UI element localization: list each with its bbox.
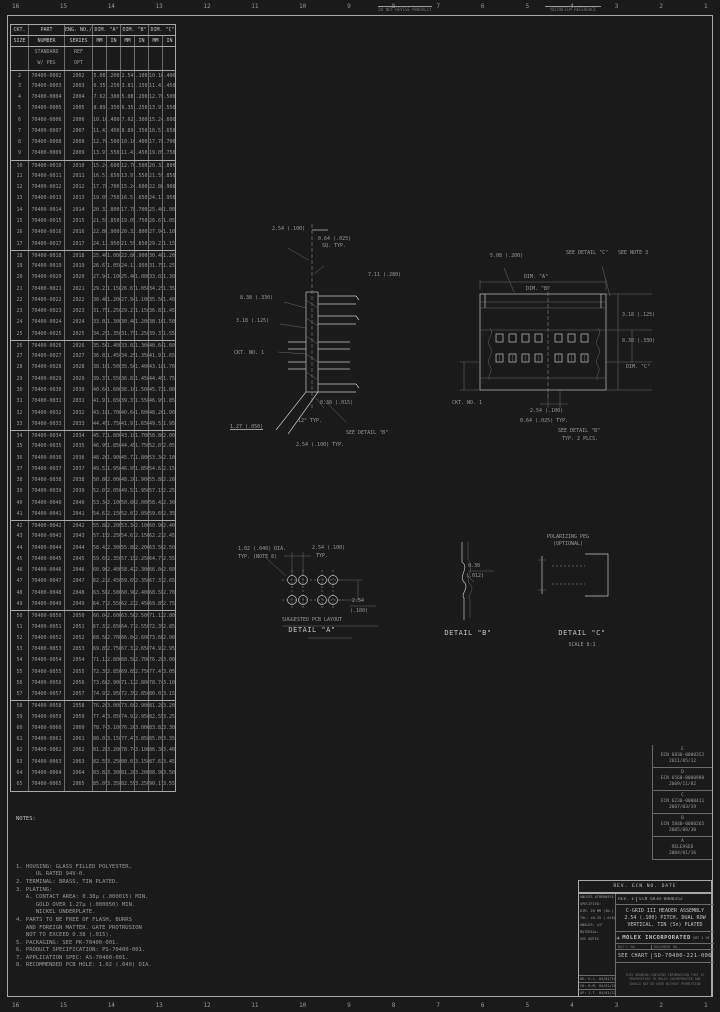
title-line-2: 2.54 (.100) PITCH, DUAL ROW	[616, 915, 714, 922]
cell-eng: 2024	[65, 317, 93, 328]
cell-ckt: 5	[11, 103, 29, 114]
cell-eng: 2022	[65, 295, 93, 306]
spec-line: SPECIFIED:	[579, 901, 615, 908]
cell-a-mm: 78.74	[93, 723, 107, 734]
cell-part: 70400-0058	[29, 701, 65, 711]
cell-a-in: 3.100	[107, 723, 121, 734]
cell-b-mm: 44.45	[121, 441, 135, 452]
cell-c-mm	[149, 47, 163, 58]
cell-a-mm: 15.24	[93, 161, 107, 171]
cell-b-in: 2.550	[135, 622, 149, 633]
cell-a-in: 1.900	[107, 453, 121, 464]
cell-part: 70400-0012	[29, 182, 65, 193]
cell-eng: 2047	[65, 576, 93, 587]
cell-b-mm: 64.77	[121, 622, 135, 633]
cell-a-mm: 48.26	[93, 453, 107, 464]
cell-a-in: 1.300	[107, 317, 121, 328]
cell-part: 70400-0008	[29, 137, 65, 148]
cell-eng: 2061	[65, 734, 93, 745]
cell-c-in: 3.250	[163, 712, 176, 723]
cell-a-mm: 53.34	[93, 498, 107, 509]
cell-a-in: 1.450	[107, 351, 121, 362]
cell-b-mm	[121, 47, 135, 58]
cell-part: 70400-0004	[29, 92, 65, 103]
table-row: 31 70400-0031 2031 41.91 1.650 39.37 1.5…	[11, 396, 175, 407]
cell-c-in: 2.500	[163, 543, 176, 554]
cell-b-in: .250	[135, 103, 149, 114]
cell-a-in: .400	[107, 115, 121, 126]
cell-a-in: 2.900	[107, 678, 121, 689]
cell-a-in: 1.100	[107, 272, 121, 283]
cell-part: 70400-0059	[29, 712, 65, 723]
cell-c-in: 3.450	[163, 757, 176, 768]
cell-part: 70400-0049	[29, 599, 65, 610]
cell-a-mm: 11.43	[93, 126, 107, 137]
table-row: 62 70400-0062 2062 81.28 3.200 78.74 3.1…	[11, 745, 175, 756]
cell-c-in: 1.900	[163, 408, 176, 419]
cell-c-in: 2.250	[163, 486, 176, 497]
cell-ckt: 24	[11, 317, 29, 328]
cell-ckt: 48	[11, 588, 29, 599]
cell-c-mm: 13.97	[149, 103, 163, 114]
cell-c-in: 2.600	[163, 565, 176, 576]
spec-line: DIM. IN MM (IN.)	[579, 908, 615, 915]
zone-label: 15	[60, 2, 67, 12]
cell-a-mm	[93, 58, 107, 69]
cell-c-in: 2.450	[163, 531, 176, 542]
cell-part: 70400-0027	[29, 351, 65, 362]
cell-eng: 2015	[65, 216, 93, 227]
cell-eng: 2032	[65, 408, 93, 419]
cell-ckt: 13	[11, 193, 29, 204]
cell-part: 70400-0048	[29, 588, 65, 599]
spec-line: UNLESS OTHERWISE	[579, 894, 615, 901]
cell-a-mm: 26.67	[93, 261, 107, 272]
cell-eng: 2054	[65, 655, 93, 666]
cell-eng: 2016	[65, 227, 93, 238]
cell-a-mm: 6.35	[93, 81, 107, 92]
cell-a-mm: 85.09	[93, 779, 107, 790]
cell-c-in: 2.000	[163, 431, 176, 441]
cell-part: 70400-0055	[29, 667, 65, 678]
detail-b-dim-mm: 0.30	[468, 563, 480, 569]
table-row: 63 70400-0063 2063 82.55 3.250 80.01 3.1…	[11, 757, 175, 768]
cell-a-mm: 40.64	[93, 385, 107, 396]
cell-part: 70400-0006	[29, 115, 65, 126]
dim-label: 8.38 (.330)	[240, 295, 273, 301]
cell-ckt: 7	[11, 126, 29, 137]
cell-c-mm: 86.36	[149, 745, 163, 756]
cell-a-in: 3.150	[107, 734, 121, 745]
zone-label: 14	[108, 2, 115, 12]
cell-c-mm: 17.78	[149, 137, 163, 148]
cell-ckt: 41	[11, 509, 29, 520]
cell-c-in: 2.100	[163, 453, 176, 464]
cell-a-mm: 41.91	[93, 396, 107, 407]
cell-b-mm: 7.62	[121, 115, 135, 126]
polarizing-peg-label: POLARIZING PEG	[538, 534, 598, 540]
cell-c-mm: 85.09	[149, 734, 163, 745]
cell-a-mm: 71.12	[93, 655, 107, 666]
cell-ckt: 35	[11, 441, 29, 452]
cell-b-mm: 34.29	[121, 351, 135, 362]
zone-label: 12	[203, 2, 210, 12]
cell-a-mm: 58.42	[93, 543, 107, 554]
cell-eng: 2020	[65, 272, 93, 283]
col-part-sub: NUMBER	[29, 36, 65, 46]
cell-b-in: 3.100	[135, 745, 149, 756]
cell-b-mm: 24.13	[121, 261, 135, 272]
cell-c-in: 1.050	[163, 216, 176, 227]
dim-label: 0.38 (.015)	[320, 400, 353, 406]
cell-eng: 2045	[65, 554, 93, 565]
cell-c-in: 2.800	[163, 611, 176, 621]
cell-eng: 2025	[65, 329, 93, 340]
cell-c-mm: 54.61	[149, 464, 163, 475]
cell-b-in: .450	[135, 148, 149, 159]
title-block: UNLESS OTHERWISESPECIFIED:DIM. IN MM (IN…	[578, 893, 712, 997]
cell-c-in: 1.950	[163, 419, 176, 430]
cell-ckt: 14	[11, 205, 29, 216]
cell-a-in: 3.350	[107, 779, 121, 790]
cell-part: 70400-0002	[29, 71, 65, 81]
cell-ckt: 63	[11, 757, 29, 768]
title-block-right-column: REV. E ECN 6830-0000352 C-GRID III HEADE…	[616, 894, 714, 996]
cell-a-mm: 43.18	[93, 408, 107, 419]
cell-a-in: .750	[107, 193, 121, 204]
cell-c-mm: 77.47	[149, 667, 163, 678]
cell-b-mm: 33.02	[121, 341, 135, 351]
cell-ckt	[11, 58, 29, 69]
cell-b-in: 1.300	[135, 341, 149, 351]
table-row: 24 70400-0024 2024 33.02 1.300 30.48 1.2…	[11, 317, 175, 328]
cell-c-mm: 58.42	[149, 498, 163, 509]
cell-ckt: 20	[11, 272, 29, 283]
cell-b-in: .950	[135, 261, 149, 272]
cell-a-mm: 69.85	[93, 644, 107, 655]
cell-b-mm: 15.24	[121, 182, 135, 193]
dim-label: 7.11 (.280)	[368, 272, 401, 278]
cell-ckt: 61	[11, 734, 29, 745]
cell-eng: 2028	[65, 362, 93, 373]
cell-c-in: .550	[163, 103, 176, 114]
hole-dia-label2: TYP. (NOTE 8)	[238, 554, 277, 560]
cell-a-mm: 34.29	[93, 329, 107, 340]
dim-b-label: DIM. "B"	[526, 286, 550, 292]
drawing-title: C-GRID III HEADER ASSEMBLY 2.54 (.100) P…	[616, 905, 714, 932]
detail-b-title: DETAIL "B"	[438, 629, 498, 637]
cell-b-in: 2.950	[135, 712, 149, 723]
cell-ckt: 28	[11, 362, 29, 373]
cell-a-mm: 21.59	[93, 216, 107, 227]
cell-c-mm: 87.63	[149, 757, 163, 768]
cell-eng: 2051	[65, 622, 93, 633]
cell-eng: 2059	[65, 712, 93, 723]
cell-a-in: 1.400	[107, 341, 121, 351]
cell-b-mm: 81.28	[121, 768, 135, 779]
table-row: 40 70400-0040 2040 53.34 2.100 50.80 2.0…	[11, 498, 175, 509]
cell-a-mm: 22.86	[93, 227, 107, 238]
cell-c-mm: 33.02	[149, 272, 163, 283]
cell-a-mm: 66.04	[93, 611, 107, 621]
cell-eng: 2037	[65, 464, 93, 475]
cell-a-in: .450	[107, 126, 121, 137]
cell-a-in: 1.950	[107, 464, 121, 475]
table-row: 47 70400-0047 2047 62.23 2.450 59.69 2.3…	[11, 576, 175, 587]
cell-c-in: 1.850	[163, 396, 176, 407]
table-row: 32 70400-0032 2032 43.18 1.700 40.64 1.6…	[11, 408, 175, 419]
cell-ckt	[11, 47, 29, 58]
revision-history: E ECN 6830-0000352 2011/05/12D ECN 6560-…	[652, 745, 712, 860]
engineering-drawing-sheet: { "colors":{"bg":"#1a1a1a","ink":"#c4c4c…	[0, 0, 720, 1012]
col-c-in: IN	[163, 36, 176, 46]
dim-label: CKT. NO. 1	[234, 350, 264, 356]
notes-title: NOTES:	[16, 816, 236, 824]
cell-part: 70400-0043	[29, 531, 65, 542]
cell-c-in: 2.900	[163, 633, 176, 644]
cell-c-in: 2.350	[163, 509, 176, 520]
cell-b-mm: 41.91	[121, 419, 135, 430]
table-row: 7 70400-0007 2007 11.43 .450 8.89 .350 1…	[11, 126, 175, 137]
note-line: 3. PLATING:	[16, 887, 236, 895]
cell-a-mm: 59.69	[93, 554, 107, 565]
cell-a-mm: 19.05	[93, 193, 107, 204]
rev-ecn-row: REV. E ECN 6830-0000352	[616, 894, 714, 905]
note-line: 1. HOUSING: GLASS FILLED POLYESTER,	[16, 864, 236, 872]
cell-a-in: 1.600	[107, 385, 121, 396]
cell-ckt: 22	[11, 295, 29, 306]
material-number: SEE CHART	[616, 953, 652, 959]
table-row: 34 70400-0034 2034 45.72 1.800 43.18 1.7…	[11, 430, 175, 441]
table-row: 39 70400-0039 2039 52.07 2.050 49.53 1.9…	[11, 486, 175, 497]
cell-eng: 2064	[65, 768, 93, 779]
cell-a-in: .950	[107, 239, 121, 250]
cell-a-in: 2.600	[107, 611, 121, 621]
cell-a-in: 2.250	[107, 531, 121, 542]
cell-b-mm: 26.67	[121, 284, 135, 295]
cell-b-mm: 55.88	[121, 543, 135, 554]
cell-a-in: 1.200	[107, 295, 121, 306]
table-row: 10 70400-0010 2010 15.24 .600 12.70 .500…	[11, 160, 175, 171]
cell-c-in: 2.850	[163, 622, 176, 633]
document-number: SD-70400-221-006	[652, 953, 714, 959]
cell-b-in: 2.450	[135, 599, 149, 610]
cell-b-mm: 71.12	[121, 678, 135, 689]
cell-part: 70400-0041	[29, 509, 65, 520]
cell-c-in: 2.650	[163, 576, 176, 587]
zone-label: 10	[299, 1001, 306, 1011]
note-line: 4. PARTS TO BE FREE OF FLASH, BURRS	[16, 917, 236, 925]
dim-label: TYP. 2 PLCS.	[562, 436, 598, 442]
signoff-row: CH: R.M. 04/01/20	[579, 982, 615, 989]
cell-a-in: 1.500	[107, 362, 121, 373]
microtext-left: DO NOT REVISE MANUALLY	[378, 6, 432, 12]
cell-b-in	[135, 58, 149, 69]
cell-part: 70400-0009	[29, 148, 65, 159]
cell-a-in: 2.050	[107, 486, 121, 497]
table-row: 51 70400-0051 2051 67.31 2.650 64.77 2.5…	[11, 622, 175, 633]
table-row: 15 70400-0015 2015 21.59 .850 19.05 .750…	[11, 216, 175, 227]
table-row: 50 70400-0050 2050 66.04 2.600 63.50 2.5…	[11, 610, 175, 621]
cell-ckt: 49	[11, 599, 29, 610]
cell-part: 70400-0019	[29, 261, 65, 272]
table-row: 53 70400-0053 2053 69.85 2.750 67.31 2.6…	[11, 644, 175, 655]
see-detail-b-label: SEE DETAIL "B"	[558, 428, 600, 434]
optional-label: (OPTIONAL)	[538, 541, 598, 547]
cell-b-in: .150	[135, 81, 149, 92]
table-row: 6 70400-0006 2006 10.16 .400 7.62 .300 1…	[11, 115, 175, 126]
cell-b-in: 2.200	[135, 543, 149, 554]
cell-b-mm	[121, 58, 135, 69]
cell-b-in: 2.250	[135, 554, 149, 565]
cell-ckt: 29	[11, 374, 29, 385]
cell-eng: OPT	[65, 58, 93, 69]
cell-b-in: 1.350	[135, 351, 149, 362]
cell-a-mm: 16.51	[93, 171, 107, 182]
table-row: 37 70400-0037 2037 49.53 1.950 46.99 1.8…	[11, 464, 175, 475]
cell-a-mm: 12.70	[93, 137, 107, 148]
cell-c-in: 1.500	[163, 317, 176, 328]
cell-ckt: 60	[11, 723, 29, 734]
table-header-row-1: CKT. PART ENG. NO./ DIM. "A" DIM. "B" DI…	[11, 25, 175, 36]
cell-c-in: 1.550	[163, 329, 176, 340]
rev-value: REV. E	[616, 897, 637, 902]
cell-ckt: 40	[11, 498, 29, 509]
col-dim-c: DIM. "C"	[149, 25, 176, 35]
cell-c-mm: 11.43	[149, 81, 163, 92]
cell-a-mm: 49.53	[93, 464, 107, 475]
cell-b-in: 3.000	[135, 723, 149, 734]
zone-label: 9	[347, 2, 351, 12]
cell-c-in: 1.200	[163, 251, 176, 261]
cell-c-mm: 76.20	[149, 655, 163, 666]
cell-a-in	[107, 58, 121, 69]
cell-part: 70400-0018	[29, 251, 65, 261]
cell-eng: 2039	[65, 486, 93, 497]
cell-c-in: 3.300	[163, 723, 176, 734]
zone-label: 6	[481, 1001, 485, 1011]
cell-a-mm: 5.08	[93, 71, 107, 81]
cell-eng: 2050	[65, 611, 93, 621]
cell-part: 70400-0039	[29, 486, 65, 497]
cell-part: 70400-0052	[29, 633, 65, 644]
cell-a-mm: 52.07	[93, 486, 107, 497]
molex-logo-icon: ✳	[616, 934, 620, 942]
table-row: 65 70400-0065 2065 85.09 3.350 82.55 3.2…	[11, 779, 175, 790]
cell-b-in: .300	[135, 115, 149, 126]
cell-b-mm: 11.43	[121, 148, 135, 159]
cell-c-mm: 50.80	[149, 431, 163, 441]
table-row: 11 70400-0011 2011 16.51 .650 13.97 .550…	[11, 171, 175, 182]
cell-part: 70400-0064	[29, 768, 65, 779]
cell-b-in: 1.400	[135, 362, 149, 373]
document-no-label: DOCUMENT NO.	[652, 945, 681, 949]
detail-c-title: DETAIL "C"	[553, 629, 611, 637]
cell-b-in: 2.000	[135, 498, 149, 509]
cell-a-in: 3.000	[107, 701, 121, 711]
cell-c-mm: 64.77	[149, 554, 163, 565]
cell-part: 70400-0005	[29, 103, 65, 114]
dim-label: 12° TYP.	[298, 418, 322, 424]
cell-b-in: 2.150	[135, 531, 149, 542]
cell-a-mm: 83.82	[93, 768, 107, 779]
note-line: AND FOREIGN MATTER. GATE PROTRUSION	[16, 925, 236, 933]
table-row: 36 70400-0036 2036 48.26 1.900 45.72 1.8…	[11, 453, 175, 464]
cell-c-mm: 29.21	[149, 239, 163, 250]
cell-part: STANDARD	[29, 47, 65, 58]
col-b-mm: MM	[121, 36, 135, 46]
cell-b-mm: 73.66	[121, 701, 135, 711]
table-row: 60 70400-0060 2060 78.74 3.100 76.20 3.0…	[11, 723, 175, 734]
cell-eng: 2017	[65, 239, 93, 250]
cell-eng: 2040	[65, 498, 93, 509]
cell-c-mm: 63.50	[149, 543, 163, 554]
cell-c-in: 2.400	[163, 521, 176, 531]
cell-a-mm: 57.15	[93, 531, 107, 542]
table-row: W/ PEG OPT	[11, 58, 175, 69]
zone-label: 13	[156, 1001, 163, 1011]
cell-a-in: 3.050	[107, 712, 121, 723]
cell-b-in: 2.700	[135, 655, 149, 666]
cell-c-in: 3.350	[163, 734, 176, 745]
cell-c-in: .700	[163, 137, 176, 148]
cell-b-mm: 60.96	[121, 588, 135, 599]
cell-c-mm: 39.37	[149, 329, 163, 340]
cell-a-mm: 30.48	[93, 295, 107, 306]
cell-c-mm: 45.72	[149, 385, 163, 396]
cell-c-in: .400	[163, 71, 176, 81]
cell-c-mm: 62.23	[149, 531, 163, 542]
cell-a-in: .650	[107, 171, 121, 182]
cell-c-mm: 31.75	[149, 261, 163, 272]
cell-part: 70400-0051	[29, 622, 65, 633]
cell-b-mm: 82.55	[121, 779, 135, 790]
cell-b-in: 1.700	[135, 431, 149, 441]
cell-part: 70400-0040	[29, 498, 65, 509]
cell-ckt: 10	[11, 161, 29, 171]
zone-label: 4	[570, 1001, 574, 1011]
col-c-mm: MM	[149, 36, 163, 46]
cell-ckt: 33	[11, 419, 29, 430]
zone-label: 1	[704, 1001, 708, 1011]
cell-eng: 2038	[65, 475, 93, 486]
cell-b-in: 1.150	[135, 306, 149, 317]
cell-b-in: 1.050	[135, 284, 149, 295]
dim-label: 5.08 (.200)	[490, 253, 523, 259]
cell-ckt: 16	[11, 227, 29, 238]
table-row: 49 70400-0049 2049 64.77 2.550 62.23 2.4…	[11, 599, 175, 610]
cell-b-in: .200	[135, 92, 149, 103]
detail-c-view	[530, 550, 630, 605]
table-row: 59 70400-0059 2059 77.47 3.050 74.93 2.9…	[11, 712, 175, 723]
cell-a-in: 3.250	[107, 757, 121, 768]
table-row: 38 70400-0038 2038 50.80 2.000 48.26 1.9…	[11, 475, 175, 486]
cell-part: 70400-0029	[29, 374, 65, 385]
table-row: 23 70400-0023 2023 31.75 1.250 29.21 1.1…	[11, 306, 175, 317]
cell-ckt: 36	[11, 453, 29, 464]
cell-a-in: .200	[107, 71, 121, 81]
cell-part: 70400-0016	[29, 227, 65, 238]
cell-c-in: .750	[163, 148, 176, 159]
cell-c-in: 1.600	[163, 341, 176, 351]
cell-b-in: 1.900	[135, 475, 149, 486]
cell-b-mm: 68.58	[121, 655, 135, 666]
company-name: MOLEX INCORPORATED	[622, 935, 691, 941]
cell-part: 70400-0015	[29, 216, 65, 227]
cell-a-mm: 54.61	[93, 509, 107, 520]
cell-c-in: 2.750	[163, 599, 176, 610]
cell-eng: 2003	[65, 81, 93, 92]
